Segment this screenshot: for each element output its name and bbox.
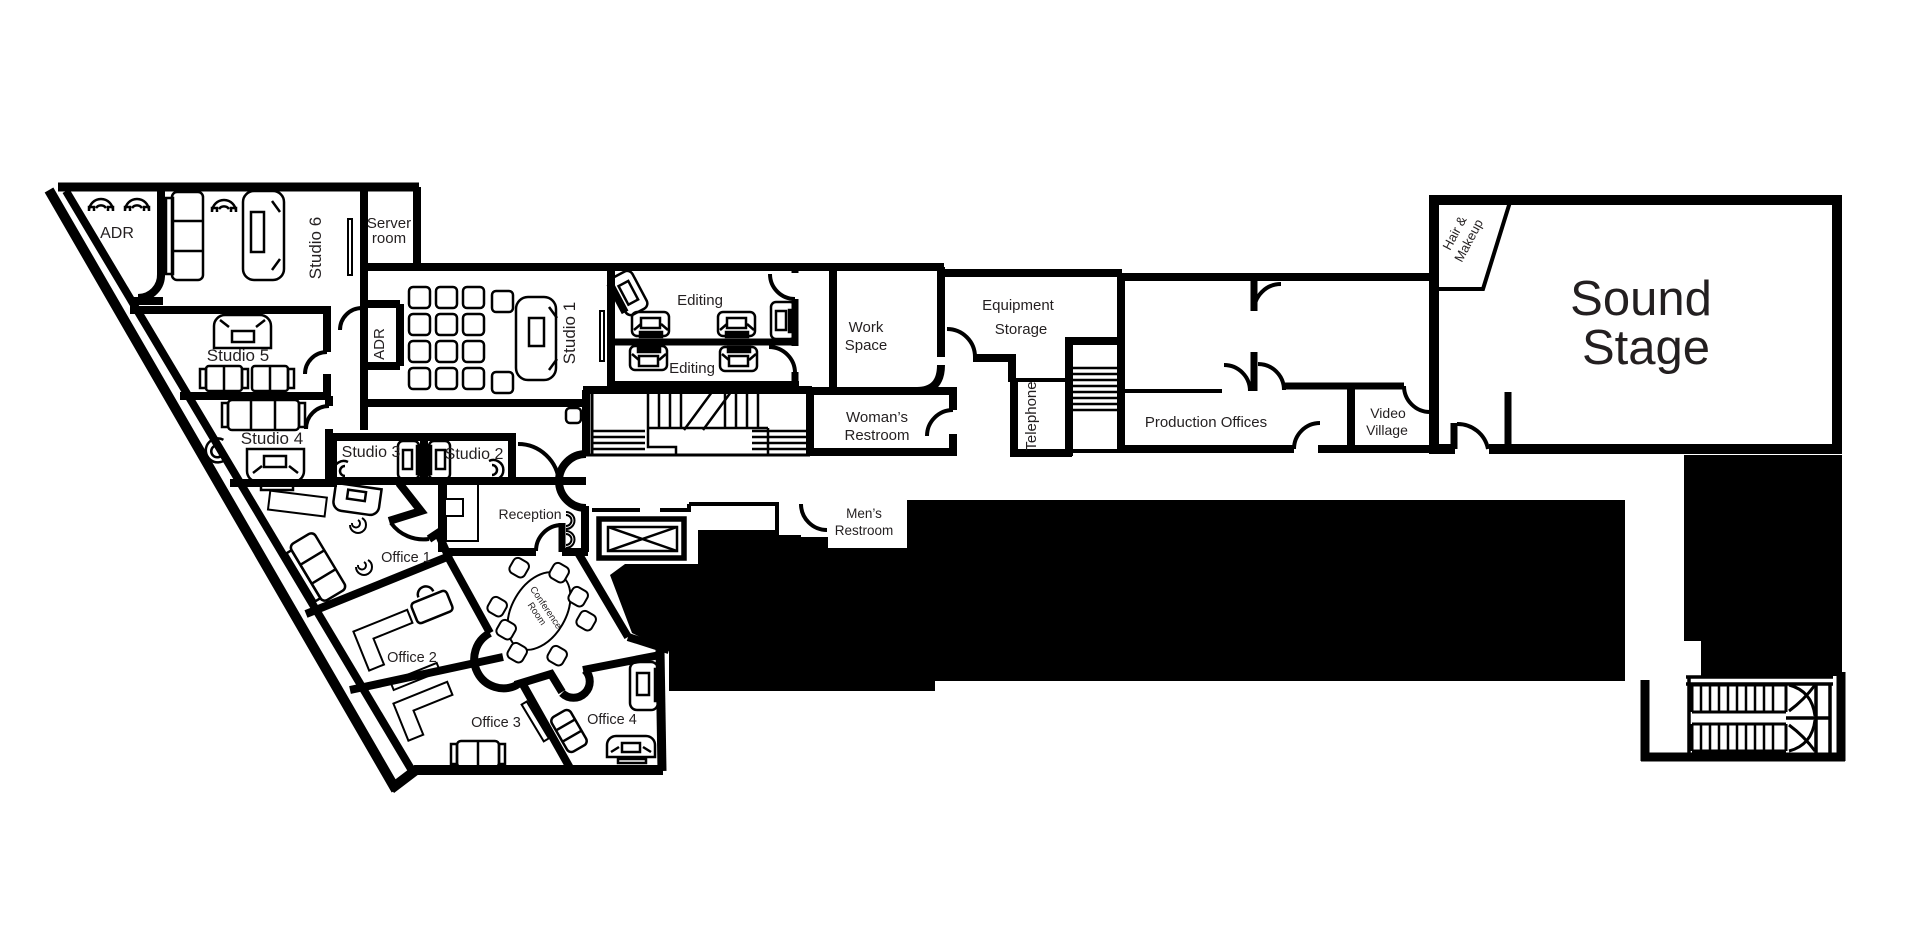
- svg-text:ADR: ADR: [100, 225, 134, 242]
- svg-text:Village: Village: [1366, 422, 1408, 438]
- svg-text:Editing: Editing: [669, 360, 715, 377]
- svg-text:Studio 5: Studio 5: [207, 346, 269, 365]
- svg-text:Sound: Sound: [1570, 272, 1712, 326]
- svg-text:Men’s: Men’s: [846, 506, 882, 521]
- svg-text:Studio 2: Studio 2: [445, 446, 504, 463]
- svg-text:Editing: Editing: [677, 292, 723, 309]
- svg-text:Office 1: Office 1: [381, 550, 431, 566]
- svg-text:Studio 4: Studio 4: [241, 429, 303, 448]
- svg-text:Storage: Storage: [995, 321, 1048, 338]
- svg-text:Studio 3: Studio 3: [342, 444, 401, 461]
- svg-text:Space: Space: [845, 337, 888, 354]
- svg-text:Office 2: Office 2: [387, 650, 437, 666]
- svg-text:Stage: Stage: [1582, 321, 1710, 375]
- svg-text:Restroom: Restroom: [844, 427, 909, 444]
- svg-text:Office 4: Office 4: [587, 712, 637, 728]
- svg-text:room: room: [372, 230, 406, 247]
- svg-text:Work: Work: [849, 319, 884, 336]
- svg-text:Office 3: Office 3: [471, 715, 521, 731]
- svg-text:Production Offices: Production Offices: [1145, 414, 1267, 431]
- svg-text:Video: Video: [1370, 405, 1406, 421]
- svg-text:Telephone: Telephone: [1023, 381, 1040, 450]
- svg-text:Studio 6: Studio 6: [306, 217, 325, 279]
- svg-text:Restroom: Restroom: [835, 523, 894, 538]
- svg-text:Reception: Reception: [498, 506, 561, 522]
- svg-text:Equipment: Equipment: [982, 297, 1055, 314]
- svg-text:Studio 1: Studio 1: [560, 302, 579, 364]
- svg-text:Woman’s: Woman’s: [846, 409, 908, 426]
- svg-text:ADR: ADR: [371, 328, 388, 360]
